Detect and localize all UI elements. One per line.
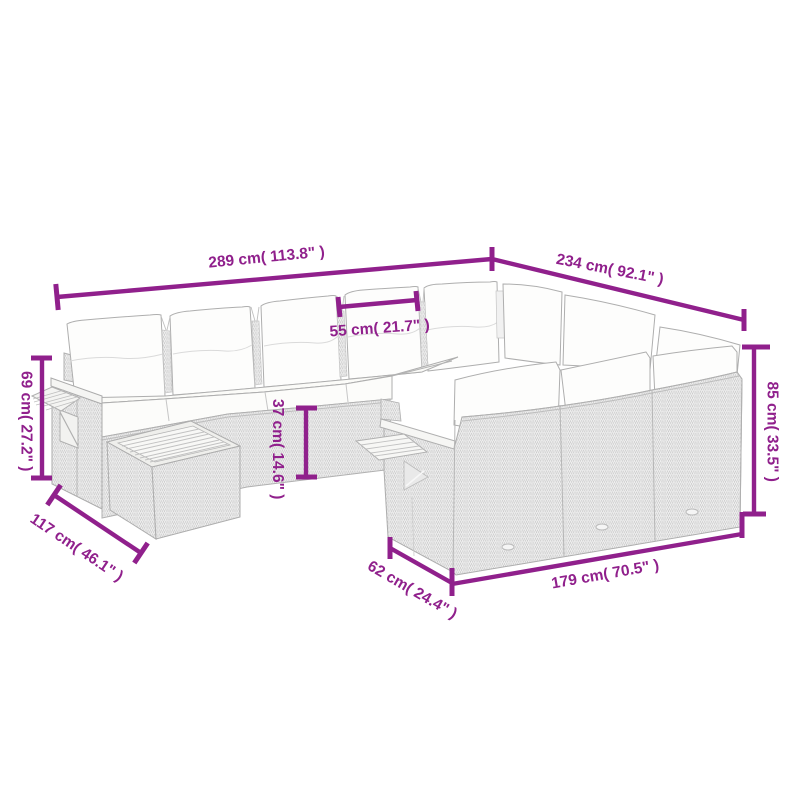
- svg-text:85 cm( 33.5" ): 85 cm( 33.5" ): [764, 382, 781, 482]
- svg-text:37 cm( 14.6" ): 37 cm( 14.6" ): [269, 399, 286, 499]
- svg-text:69 cm( 27.2" ): 69 cm( 27.2" ): [18, 371, 35, 471]
